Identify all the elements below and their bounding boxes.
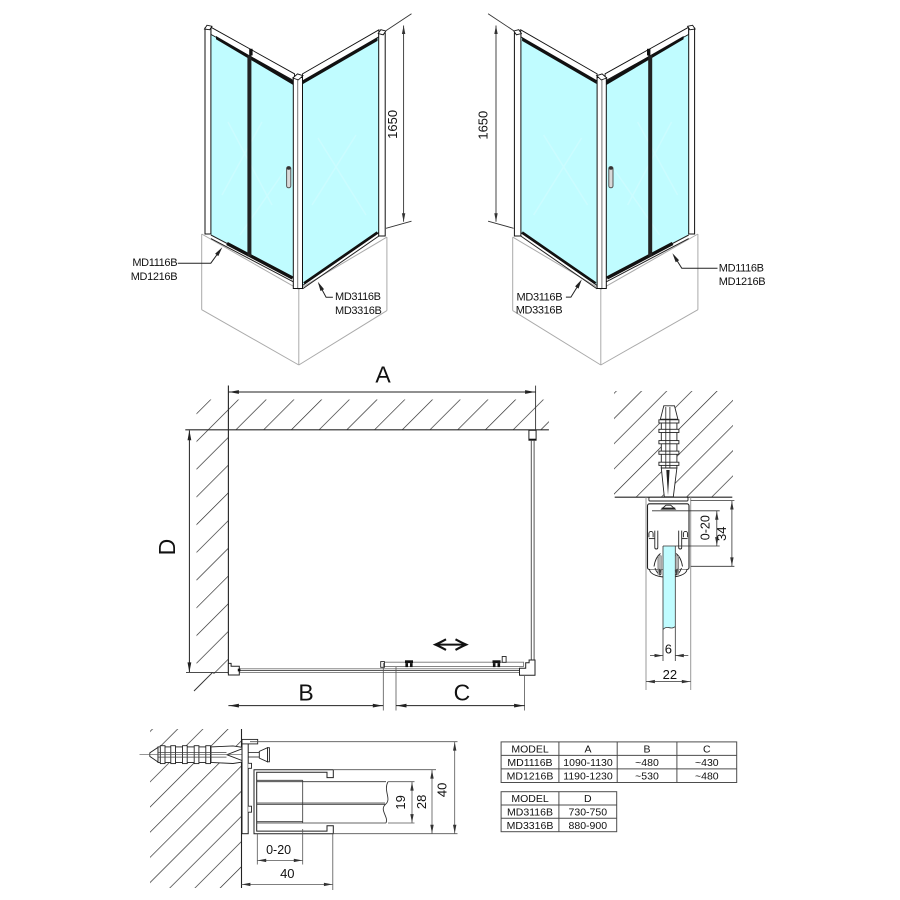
- svg-text:~430: ~430: [695, 757, 719, 769]
- svg-text:1190-1230: 1190-1230: [563, 770, 613, 782]
- svg-text:MODEL: MODEL: [511, 743, 549, 755]
- svg-text:~480: ~480: [695, 770, 719, 782]
- svg-text:B: B: [298, 680, 313, 706]
- svg-text:MD1116B: MD1116B: [132, 257, 177, 269]
- svg-text:MD3116B: MD3116B: [507, 806, 553, 818]
- svg-text:C: C: [454, 680, 471, 706]
- svg-text:1090-1130: 1090-1130: [563, 757, 613, 769]
- svg-text:22: 22: [663, 667, 677, 682]
- svg-text:6: 6: [665, 642, 672, 657]
- svg-text:1650: 1650: [385, 110, 400, 139]
- svg-text:0-20: 0-20: [698, 515, 712, 540]
- svg-text:MD3116B: MD3116B: [335, 291, 381, 303]
- svg-text:MODEL: MODEL: [511, 793, 549, 805]
- svg-text:C: C: [703, 743, 711, 755]
- svg-text:1650: 1650: [476, 111, 491, 140]
- svg-text:MD3316B: MD3316B: [516, 305, 562, 317]
- svg-text:D: D: [584, 793, 592, 805]
- svg-text:880-900: 880-900: [569, 820, 608, 832]
- svg-text:34: 34: [714, 527, 729, 541]
- svg-text:A: A: [375, 362, 391, 388]
- svg-text:~480: ~480: [635, 757, 659, 769]
- svg-text:19: 19: [393, 795, 408, 809]
- svg-text:MD3116B: MD3116B: [517, 292, 563, 304]
- svg-text:MD1216B: MD1216B: [131, 271, 177, 283]
- svg-text:~530: ~530: [635, 770, 659, 782]
- svg-text:MD3316B: MD3316B: [335, 305, 381, 317]
- svg-text:MD3316B: MD3316B: [507, 820, 554, 832]
- svg-text:40: 40: [280, 866, 294, 881]
- svg-text:730-750: 730-750: [569, 806, 608, 818]
- svg-text:0-20: 0-20: [266, 843, 291, 857]
- svg-text:B: B: [643, 743, 650, 755]
- svg-text:MD1216B: MD1216B: [507, 770, 554, 782]
- svg-text:40: 40: [435, 783, 450, 797]
- svg-text:MD1216B: MD1216B: [719, 276, 765, 288]
- svg-text:D: D: [154, 539, 180, 556]
- svg-text:A: A: [584, 743, 591, 755]
- svg-text:28: 28: [414, 795, 429, 809]
- svg-text:MD1116B: MD1116B: [719, 263, 764, 275]
- svg-text:MD1116B: MD1116B: [507, 757, 552, 769]
